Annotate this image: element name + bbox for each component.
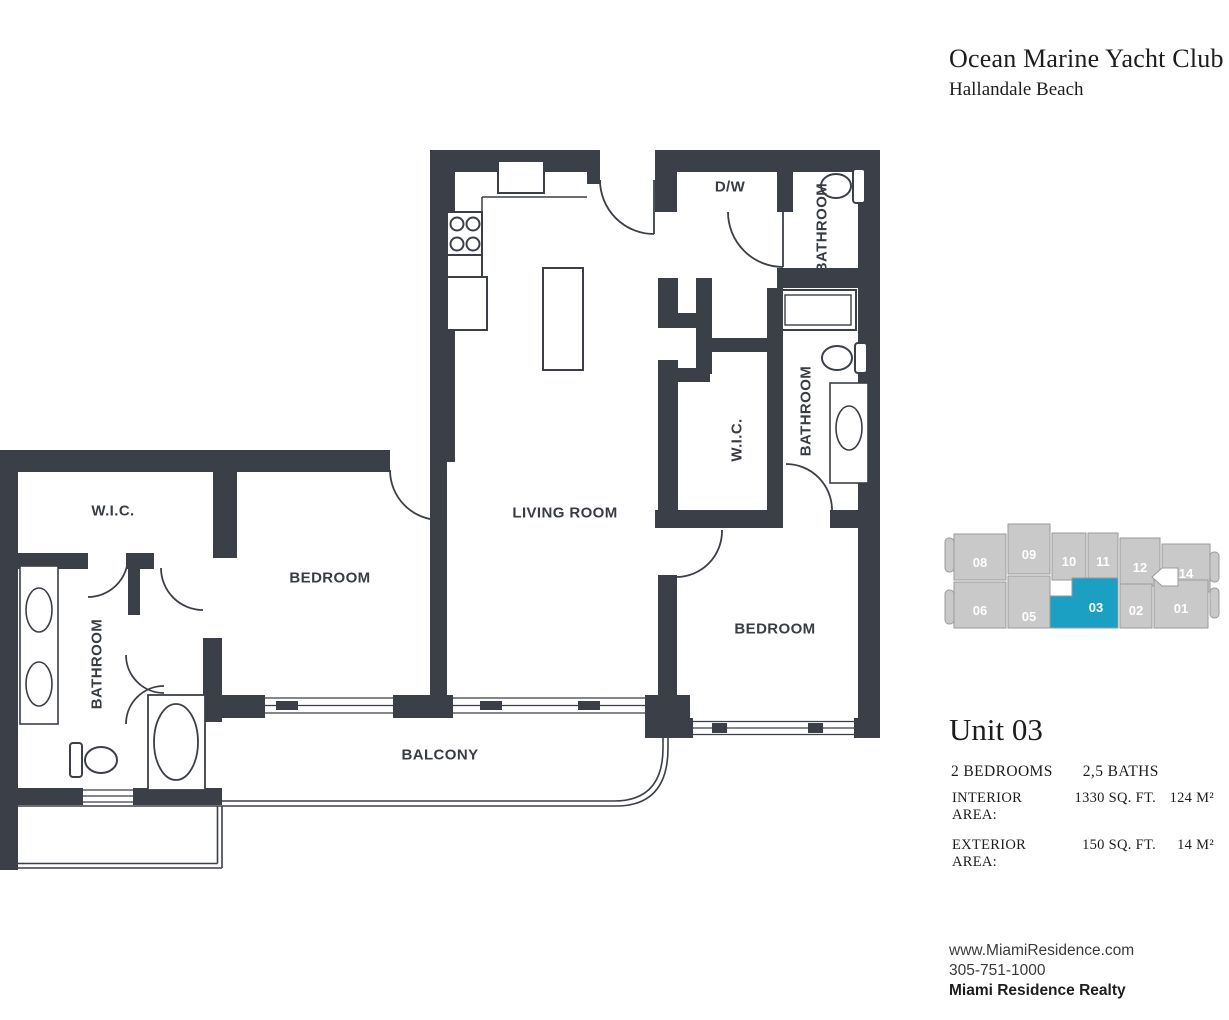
exterior-area-m2: 14 M² xyxy=(1156,837,1214,871)
exterior-area-label: EXTERIOR AREA: xyxy=(952,837,1060,871)
key-plan: 08 09 10 11 12 14 xyxy=(944,516,1222,636)
company-name: Miami Residence Realty xyxy=(949,981,1134,1001)
unit-baths: 2,5 BATHS xyxy=(1083,763,1159,781)
interior-area-label: INTERIOR AREA: xyxy=(952,790,1060,824)
label-bathroom-left: BATHROOM xyxy=(89,619,106,709)
label-wic-right: W.I.C. xyxy=(729,418,746,461)
unit-bedrooms: 2 BEDROOMS xyxy=(951,763,1053,781)
label-balcony: BALCONY xyxy=(402,747,479,764)
svg-text:02: 02 xyxy=(1129,603,1143,618)
floor-plan-svg xyxy=(0,0,929,900)
label-bathroom-top-right: BATHROOM xyxy=(814,183,831,273)
key-plan-unit-11: 11 xyxy=(1088,533,1118,580)
svg-text:01: 01 xyxy=(1174,601,1188,616)
interior-area-row: INTERIOR AREA: 1330 SQ. FT. 124 M² xyxy=(952,790,1214,824)
key-plan-unit-06: 06 xyxy=(954,582,1006,628)
website-url: www.MiamiResidence.com xyxy=(949,941,1134,961)
unit-specs: 2 BEDROOMS 2,5 BATHS xyxy=(951,763,1159,781)
label-bedroom-left: BEDROOM xyxy=(289,570,370,587)
key-plan-unit-02: 02 xyxy=(1120,584,1152,628)
building-title: Ocean Marine Yacht Club xyxy=(949,44,1224,74)
label-wic-left: W.I.C. xyxy=(91,503,134,520)
label-living-room: LIVING ROOM xyxy=(512,505,617,522)
interior-area-sqft: 1330 SQ. FT. xyxy=(1060,790,1156,824)
key-plan-unit-09: 09 xyxy=(1008,524,1050,574)
svg-text:12: 12 xyxy=(1133,560,1147,575)
label-bedroom-right: BEDROOM xyxy=(734,621,815,638)
key-plan-end-cap xyxy=(1210,588,1219,618)
key-plan-unit-08: 08 xyxy=(954,534,1006,580)
svg-text:10: 10 xyxy=(1062,554,1076,569)
area-table: INTERIOR AREA: 1330 SQ. FT. 124 M² EXTER… xyxy=(952,790,1214,884)
unit-name: Unit 03 xyxy=(949,712,1043,748)
svg-text:14: 14 xyxy=(1179,566,1194,581)
svg-text:05: 05 xyxy=(1022,609,1036,624)
interior-area-m2: 124 M² xyxy=(1156,790,1214,824)
key-plan-unit-03-highlighted: 03 xyxy=(1050,578,1118,628)
label-bathroom-right: BATHROOM xyxy=(798,366,815,456)
label-dw: D/W xyxy=(715,179,745,196)
svg-text:08: 08 xyxy=(973,555,987,570)
svg-text:09: 09 xyxy=(1022,547,1036,562)
brochure-page: D/W BATHROOM W.I.C. BATHROOM LIVING ROOM… xyxy=(0,0,1229,1020)
kitchen-fixtures xyxy=(447,161,587,370)
balcony-rail xyxy=(18,726,693,868)
key-plan-end-cap xyxy=(945,538,954,572)
key-plan-unit-10: 10 xyxy=(1052,533,1086,580)
building-subtitle: Hallandale Beach xyxy=(949,79,1084,101)
key-plan-end-cap xyxy=(1210,552,1219,582)
svg-text:03: 03 xyxy=(1089,600,1103,615)
key-plan-unit-01: 01 xyxy=(1154,580,1208,628)
exterior-area-row: EXTERIOR AREA: 150 SQ. FT. 14 M² xyxy=(952,837,1214,871)
contact-block: www.MiamiResidence.com 305-751-1000 Miam… xyxy=(949,941,1134,1001)
svg-text:06: 06 xyxy=(973,603,987,618)
exterior-area-sqft: 150 SQ. FT. xyxy=(1060,837,1156,871)
svg-text:11: 11 xyxy=(1096,554,1110,569)
key-plan-end-cap xyxy=(945,590,954,624)
key-plan-unit-05: 05 xyxy=(1008,576,1050,628)
phone-number: 305-751-1000 xyxy=(949,961,1134,981)
